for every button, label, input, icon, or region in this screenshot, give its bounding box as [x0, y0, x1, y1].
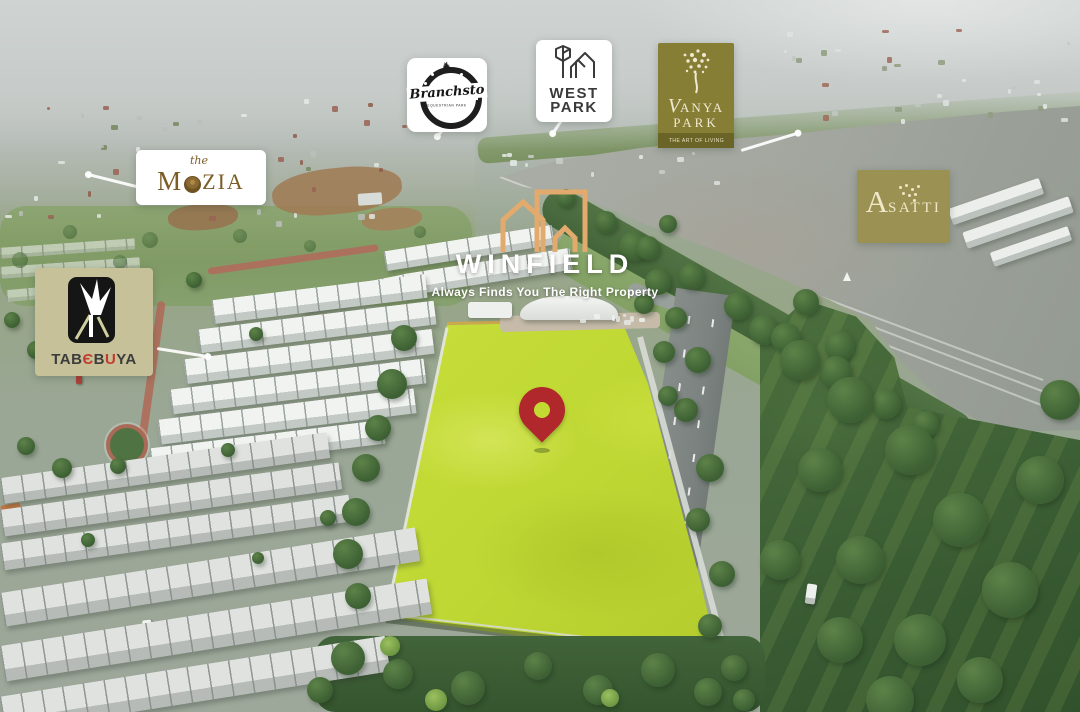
rooftop-speck	[173, 122, 179, 126]
rooftop-speck	[556, 158, 563, 164]
horseshoe-nail-dot	[424, 82, 427, 85]
rooftop-speck	[507, 153, 512, 157]
rooftop-speck	[374, 163, 379, 167]
tree	[345, 583, 371, 609]
rooftop-speck	[915, 104, 921, 107]
tree	[233, 229, 247, 243]
tree	[17, 437, 35, 455]
tree	[221, 443, 235, 457]
winfield-tagline: Always Finds You The Right Property	[410, 285, 680, 299]
tree	[352, 454, 380, 482]
horse-head-icon: ♞	[407, 59, 487, 76]
rooftop-speck	[163, 127, 167, 132]
rooftop-speck	[823, 115, 829, 121]
tree	[686, 508, 710, 532]
tree	[827, 377, 873, 423]
westpark-word-park: PARK	[536, 101, 612, 115]
tree	[733, 689, 755, 711]
rooftop-speck	[937, 94, 942, 98]
rooftop-speck	[1008, 89, 1011, 94]
tree	[142, 232, 158, 248]
rooftop-speck	[1034, 80, 1040, 84]
rooftop-speck	[276, 221, 282, 227]
tree	[342, 498, 370, 526]
tree	[304, 240, 316, 252]
rooftop-speck	[58, 161, 65, 164]
rooftop-speck	[887, 57, 892, 63]
rooftop-speck	[1043, 104, 1047, 109]
tree	[383, 659, 413, 689]
rooftop-speck	[98, 145, 104, 148]
rooftop-speck	[88, 191, 91, 197]
rooftop-speck	[369, 214, 375, 219]
tree	[894, 614, 946, 666]
rooftop-speck	[209, 216, 216, 221]
rooftop-speck	[19, 211, 23, 216]
tree	[365, 415, 391, 441]
rooftop-speck	[956, 29, 962, 32]
rooftop-speck	[312, 187, 316, 192]
tree	[524, 652, 552, 680]
tree	[653, 341, 675, 363]
branchsto-subtitle: EQUESTRIAN PARK	[425, 104, 469, 107]
tabebuya-wordmark: TABЄBUYA	[35, 351, 153, 368]
rooftop-speck	[137, 116, 142, 120]
rooftop-speck	[821, 50, 827, 56]
rooftop-speck	[832, 111, 838, 116]
rooftop-speck	[368, 103, 373, 107]
tree	[721, 655, 747, 681]
tree	[933, 493, 987, 547]
tabebuya-logo: TABЄBUYA	[35, 268, 153, 376]
rooftop-speck	[962, 79, 966, 82]
tabebuya-seg-red: Є	[82, 351, 93, 368]
tree	[885, 425, 935, 475]
tree	[113, 255, 127, 269]
rooftop-speck	[835, 49, 841, 52]
rooftop-speck	[938, 60, 945, 65]
rooftop-speck	[796, 58, 802, 63]
tree	[685, 347, 711, 373]
tree	[871, 389, 901, 419]
rooftop-speck	[358, 214, 365, 220]
rooftop-speck	[822, 83, 829, 87]
rooftop-speck	[677, 157, 684, 162]
rooftop-speck	[612, 315, 615, 321]
tree	[380, 636, 400, 656]
rooftop-speck	[379, 168, 383, 172]
rooftop-speck	[639, 155, 643, 159]
tree	[333, 539, 363, 569]
rooftop-speck	[943, 100, 949, 106]
tree	[186, 272, 202, 288]
tree	[331, 641, 365, 675]
vanya-rest: ANYA	[680, 100, 724, 115]
tabebuya-seg: YA	[116, 351, 136, 368]
rooftop-speck	[659, 170, 665, 174]
tree	[817, 617, 863, 663]
rooftop-speck	[81, 113, 84, 118]
rooftop-speck	[310, 151, 316, 157]
rooftop-speck	[278, 157, 284, 162]
tree	[252, 552, 264, 564]
ornamental-o-icon	[184, 176, 201, 193]
tree	[425, 689, 447, 711]
rooftop-speck	[257, 209, 261, 215]
tree	[709, 561, 735, 587]
aerial-site-photo: ♞ Branchsto EQUESTRIAN PARK WEST PARK	[0, 0, 1080, 712]
buildings-outline-icon	[495, 188, 595, 252]
tree	[724, 292, 752, 320]
rooftop-speck	[882, 30, 889, 33]
rooftop-speck	[639, 318, 645, 322]
rooftop-speck	[784, 50, 787, 53]
rooftop-speck	[304, 99, 309, 104]
horseshoe-nail-dot	[431, 110, 434, 113]
tree	[320, 510, 336, 526]
rooftop-speck	[616, 316, 620, 322]
tree	[249, 327, 263, 341]
pin-shadow	[534, 448, 550, 453]
rooftop-speck	[1011, 86, 1017, 89]
tabebuya-seg: TAB	[51, 351, 82, 368]
tree	[674, 398, 698, 422]
horseshoe-nail-dot	[445, 114, 448, 117]
rooftop-speck	[332, 106, 338, 112]
vanya-tagline-band: THE ART OF LIVING	[658, 133, 734, 148]
horseshoe-nail-dot	[460, 110, 463, 113]
rooftop-speck	[580, 319, 586, 323]
rooftop-speck	[300, 160, 303, 165]
rooftop-speck	[364, 120, 370, 126]
rooftop-speck	[402, 125, 407, 128]
the-mozia-logo: the M ZIA	[136, 150, 266, 205]
rooftop-speck	[113, 169, 119, 175]
rooftop-speck	[787, 32, 793, 37]
asatti-logo: A SATTI	[857, 170, 950, 243]
rooftop-speck	[34, 196, 38, 201]
tree	[12, 252, 28, 268]
rooftop-speck	[988, 112, 993, 118]
rooftop-speck	[5, 215, 12, 218]
berry-sprig-icon	[899, 186, 902, 189]
mozia-zia: ZIA	[202, 169, 245, 195]
vanya-park-word: PARK	[658, 115, 734, 131]
tabebuya-seg-red: U	[105, 351, 116, 368]
tree	[798, 448, 842, 492]
tree	[793, 289, 819, 315]
tree-and-houses-icon	[536, 40, 612, 86]
rooftop-speck	[630, 316, 634, 322]
sailboat	[843, 272, 851, 281]
rooftop-speck	[294, 213, 297, 218]
tree	[641, 653, 675, 687]
vanya-park-logo: VANYA PARK THE ART OF LIVING	[658, 43, 734, 148]
tree	[52, 458, 72, 478]
rooftop-speck	[594, 314, 600, 319]
tree	[780, 340, 820, 380]
tree	[665, 307, 687, 329]
winfield-logo: WINFIELD Always Finds You The Right Prop…	[410, 183, 680, 308]
tree	[982, 562, 1038, 618]
tree	[760, 540, 800, 580]
rooftop-speck	[894, 64, 901, 67]
rooftop-speck	[197, 120, 202, 125]
west-park-logo: WEST PARK	[536, 40, 612, 122]
lily-flower-icon	[68, 277, 115, 343]
rooftop-speck	[48, 215, 54, 219]
rooftop-speck	[103, 106, 109, 110]
tree	[679, 263, 705, 289]
rooftop-speck	[692, 152, 695, 155]
warehouse-building	[358, 192, 383, 206]
tree	[658, 386, 678, 406]
tree	[81, 533, 95, 547]
tree	[1016, 456, 1064, 504]
tree	[451, 671, 485, 705]
tree	[694, 678, 722, 706]
tree	[601, 689, 619, 707]
winfield-wordmark: WINFIELD	[410, 249, 680, 280]
tree	[4, 312, 20, 328]
vanya-initial: V	[668, 95, 680, 117]
rooftop-speck	[882, 66, 887, 71]
tree	[1040, 380, 1080, 420]
tree	[307, 677, 333, 703]
red-car	[76, 375, 82, 384]
branchsto-logo: ♞ Branchsto EQUESTRIAN PARK	[407, 58, 487, 132]
asatti-rest: SATTI	[888, 200, 941, 217]
tree	[377, 369, 407, 399]
rooftop-speck	[510, 160, 517, 166]
tree	[391, 325, 417, 351]
rooftop-speck	[1061, 118, 1068, 122]
rooftop-speck	[111, 125, 118, 130]
rooftop-speck	[901, 119, 905, 124]
rooftop-speck	[714, 181, 720, 185]
tabebuya-seg: B	[94, 351, 105, 368]
rooftop-speck	[241, 114, 247, 117]
rooftop-speck	[525, 163, 528, 167]
tree	[957, 657, 1003, 703]
asatti-initial: A	[866, 184, 888, 220]
rooftop-speck	[591, 172, 594, 177]
rooftop-speck	[306, 167, 311, 171]
mozia-m: M	[157, 166, 183, 197]
tree	[110, 458, 126, 474]
tree	[698, 614, 722, 638]
tree	[696, 454, 724, 482]
vanya-tagline: THE ART OF LIVING	[668, 138, 723, 143]
dandelion-tree-icon	[658, 43, 734, 95]
tree	[836, 536, 884, 584]
tree	[63, 225, 77, 239]
rooftop-speck	[895, 107, 902, 112]
